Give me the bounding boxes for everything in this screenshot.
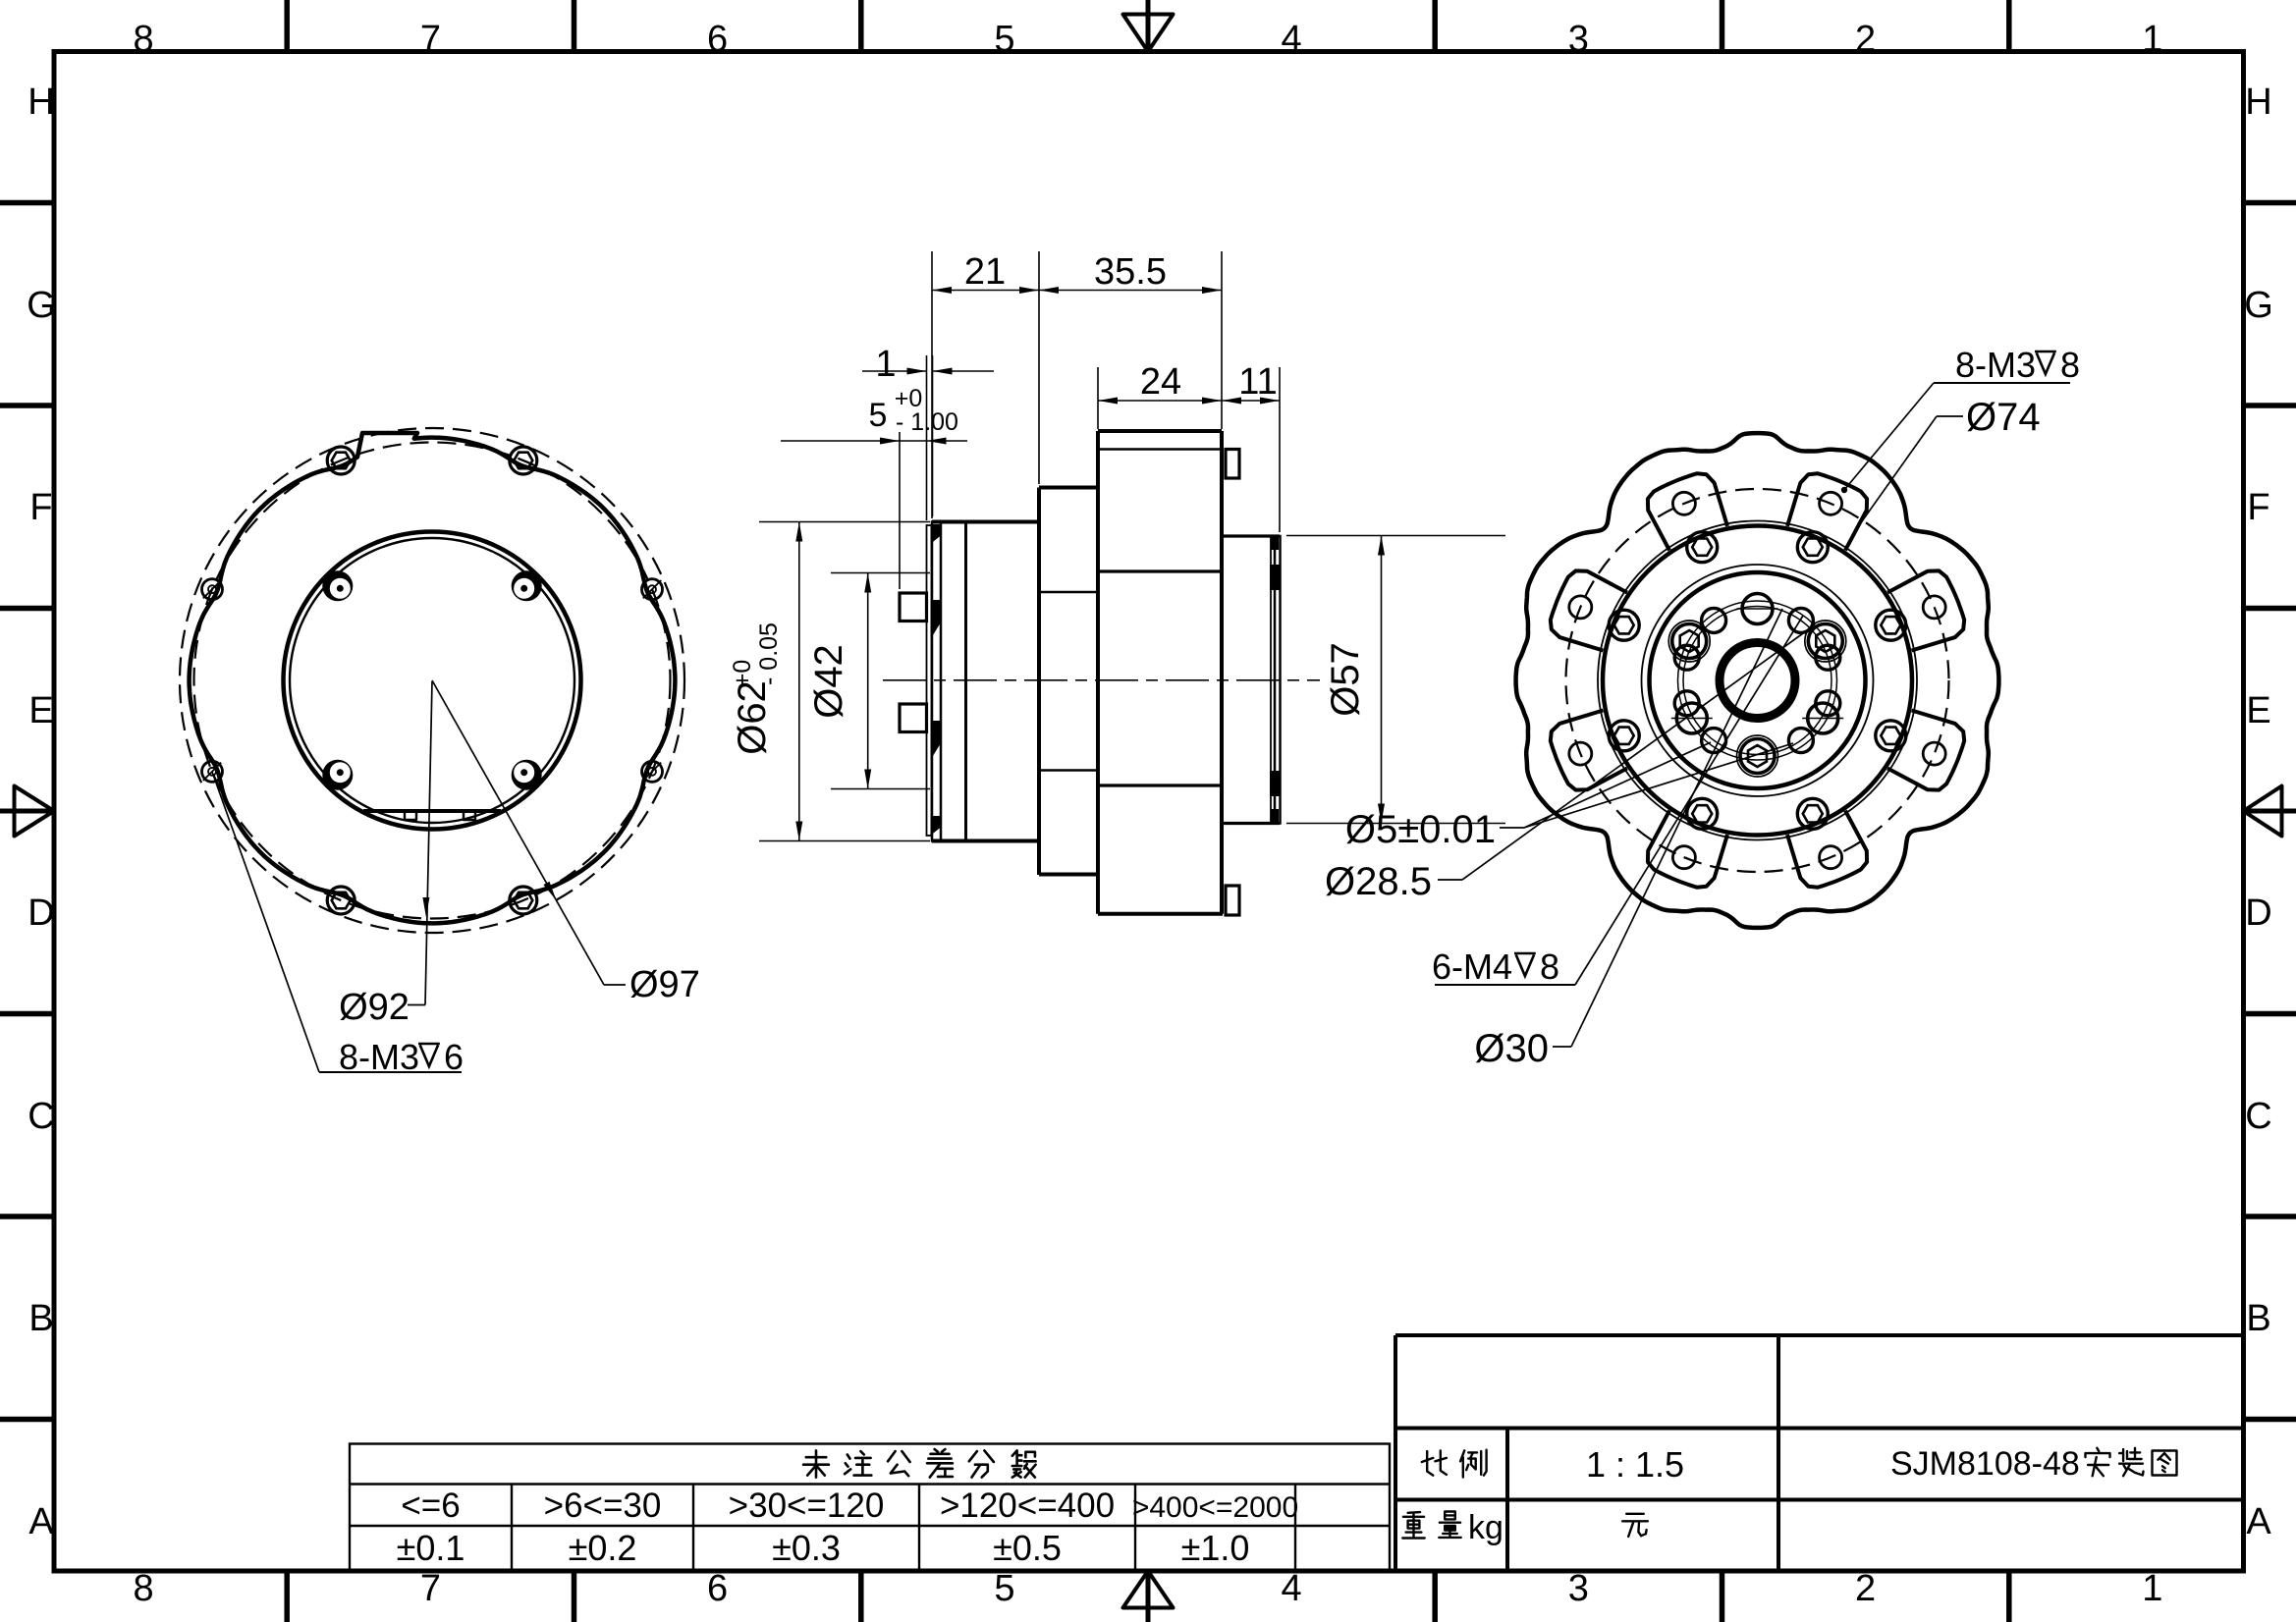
svg-text:±1.0: ±1.0 bbox=[1181, 1528, 1250, 1568]
svg-text:6: 6 bbox=[707, 19, 728, 60]
svg-text:1: 1 bbox=[2142, 1568, 2162, 1609]
svg-text:±0.1: ±0.1 bbox=[397, 1528, 465, 1568]
svg-text:7: 7 bbox=[420, 19, 441, 60]
svg-text:Ø97: Ø97 bbox=[629, 964, 700, 1005]
svg-text:4: 4 bbox=[1282, 1568, 1302, 1609]
svg-text:kg: kg bbox=[1468, 1509, 1503, 1546]
svg-text:B: B bbox=[2246, 1298, 2270, 1339]
svg-text:Ø42: Ø42 bbox=[807, 644, 850, 719]
svg-text:5: 5 bbox=[869, 397, 888, 434]
svg-text:<=6: <=6 bbox=[401, 1487, 460, 1525]
svg-text:±0.3: ±0.3 bbox=[772, 1528, 841, 1568]
svg-text:3: 3 bbox=[1568, 1568, 1589, 1609]
svg-text:6: 6 bbox=[444, 1037, 464, 1077]
svg-text:Ø92: Ø92 bbox=[339, 987, 410, 1028]
svg-text:E: E bbox=[28, 690, 53, 731]
svg-text:SJM8108-48: SJM8108-48 bbox=[1890, 1445, 2080, 1483]
svg-text:H: H bbox=[27, 81, 54, 123]
svg-text:5: 5 bbox=[994, 19, 1014, 60]
svg-text:24: 24 bbox=[1140, 361, 1181, 403]
svg-text:E: E bbox=[2246, 690, 2270, 731]
svg-text:8-M3: 8-M3 bbox=[1955, 345, 2036, 385]
svg-text:2: 2 bbox=[1855, 1568, 1876, 1609]
svg-text:>400<=2000: >400<=2000 bbox=[1132, 1491, 1298, 1524]
svg-text:±0.5: ±0.5 bbox=[993, 1528, 1062, 1568]
svg-text:+0: +0 bbox=[729, 660, 756, 688]
svg-text:8: 8 bbox=[134, 1568, 154, 1609]
svg-text:C: C bbox=[2245, 1096, 2271, 1137]
svg-text:8: 8 bbox=[1540, 946, 1559, 987]
svg-text:±0.2: ±0.2 bbox=[569, 1528, 637, 1568]
svg-text:8: 8 bbox=[2060, 345, 2080, 385]
svg-text:7: 7 bbox=[420, 1568, 441, 1609]
svg-text:11: 11 bbox=[1238, 361, 1277, 403]
svg-text:5: 5 bbox=[994, 1568, 1014, 1609]
svg-text:35.5: 35.5 bbox=[1094, 251, 1167, 293]
svg-text:D: D bbox=[2245, 892, 2271, 934]
svg-text:6: 6 bbox=[707, 1568, 728, 1609]
svg-text:>30<=120: >30<=120 bbox=[729, 1487, 885, 1525]
svg-text:- 1.00: - 1.00 bbox=[896, 408, 958, 436]
svg-text:4: 4 bbox=[1282, 19, 1302, 60]
svg-text:A: A bbox=[28, 1501, 54, 1542]
svg-text:G: G bbox=[2244, 285, 2273, 326]
svg-text:Ø62: Ø62 bbox=[731, 680, 774, 755]
svg-text:Ø57: Ø57 bbox=[1324, 642, 1367, 717]
svg-text:D: D bbox=[27, 892, 54, 934]
svg-text:G: G bbox=[27, 285, 56, 326]
svg-text:H: H bbox=[2245, 81, 2271, 123]
svg-text:8: 8 bbox=[134, 19, 154, 60]
svg-text:A: A bbox=[2246, 1501, 2271, 1542]
svg-text:Ø74: Ø74 bbox=[1966, 396, 2041, 439]
svg-text:21: 21 bbox=[964, 251, 1006, 293]
svg-text:>120<=400: >120<=400 bbox=[940, 1487, 1115, 1525]
svg-text:1: 1 bbox=[875, 344, 896, 385]
svg-text:1 : 1.5: 1 : 1.5 bbox=[1586, 1444, 1684, 1485]
svg-text:>6<=30: >6<=30 bbox=[544, 1487, 662, 1525]
svg-text:Ø5±0.01: Ø5±0.01 bbox=[1345, 808, 1496, 851]
svg-text:F: F bbox=[2247, 487, 2269, 528]
svg-text:F: F bbox=[29, 487, 52, 528]
svg-text:B: B bbox=[28, 1298, 53, 1339]
svg-text:Ø30: Ø30 bbox=[1474, 1027, 1549, 1070]
svg-text:2: 2 bbox=[1855, 19, 1876, 60]
svg-text:1: 1 bbox=[2142, 19, 2162, 60]
svg-text:- 0.05: - 0.05 bbox=[755, 622, 783, 685]
svg-text:C: C bbox=[27, 1096, 54, 1137]
svg-text:Ø28.5: Ø28.5 bbox=[1325, 860, 1432, 903]
svg-text:6-M4: 6-M4 bbox=[1432, 946, 1512, 987]
svg-text:8-M3: 8-M3 bbox=[339, 1037, 419, 1077]
svg-text:3: 3 bbox=[1568, 19, 1589, 60]
